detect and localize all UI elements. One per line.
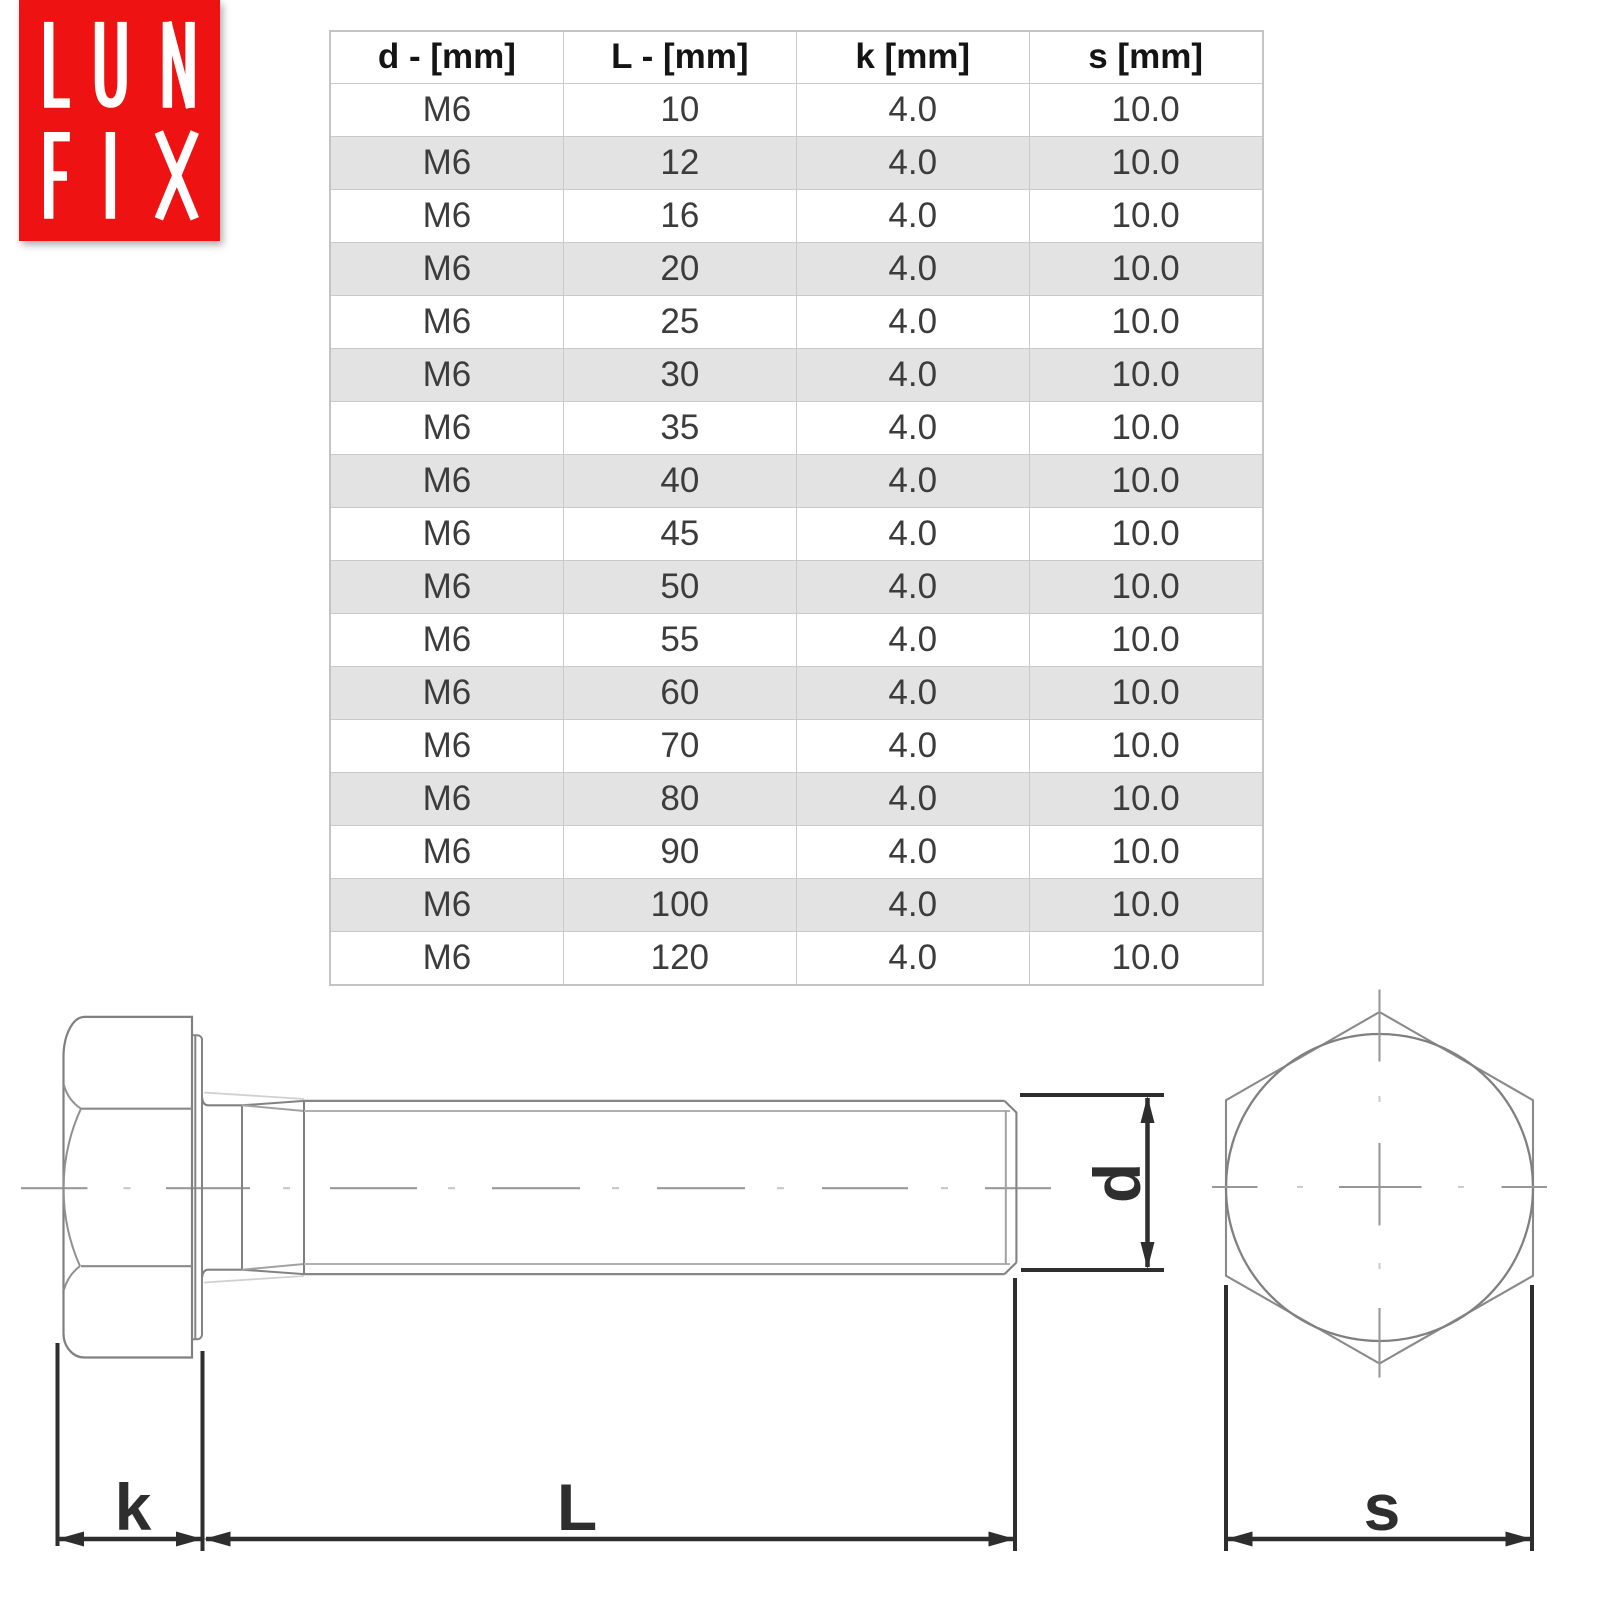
svg-text:d: d: [1080, 1163, 1154, 1203]
svg-text:L: L: [557, 1470, 597, 1544]
svg-text:s: s: [1364, 1470, 1401, 1544]
svg-text:k: k: [115, 1470, 152, 1544]
